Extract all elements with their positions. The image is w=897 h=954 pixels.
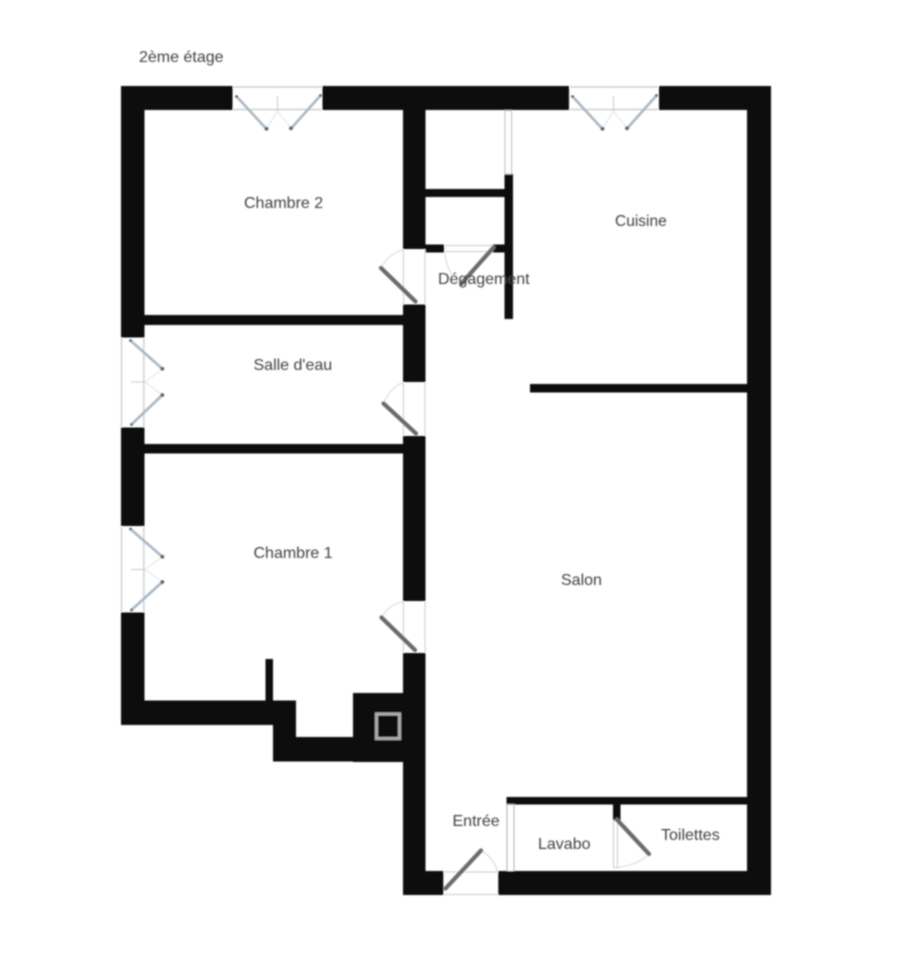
svg-text:Dégagement: Dégagement xyxy=(438,271,530,288)
svg-text:Chambre 2: Chambre 2 xyxy=(244,195,323,212)
svg-text:Lavabo: Lavabo xyxy=(538,836,591,853)
svg-text:Toilettes: Toilettes xyxy=(661,827,720,844)
svg-text:Salle d'eau: Salle d'eau xyxy=(254,357,333,374)
svg-text:Cuisine: Cuisine xyxy=(615,213,667,230)
svg-text:Salon: Salon xyxy=(561,572,602,589)
svg-text:Chambre 1: Chambre 1 xyxy=(254,545,333,562)
svg-text:2ème étage: 2ème étage xyxy=(139,49,224,66)
svg-text:Entrée: Entrée xyxy=(453,813,500,830)
